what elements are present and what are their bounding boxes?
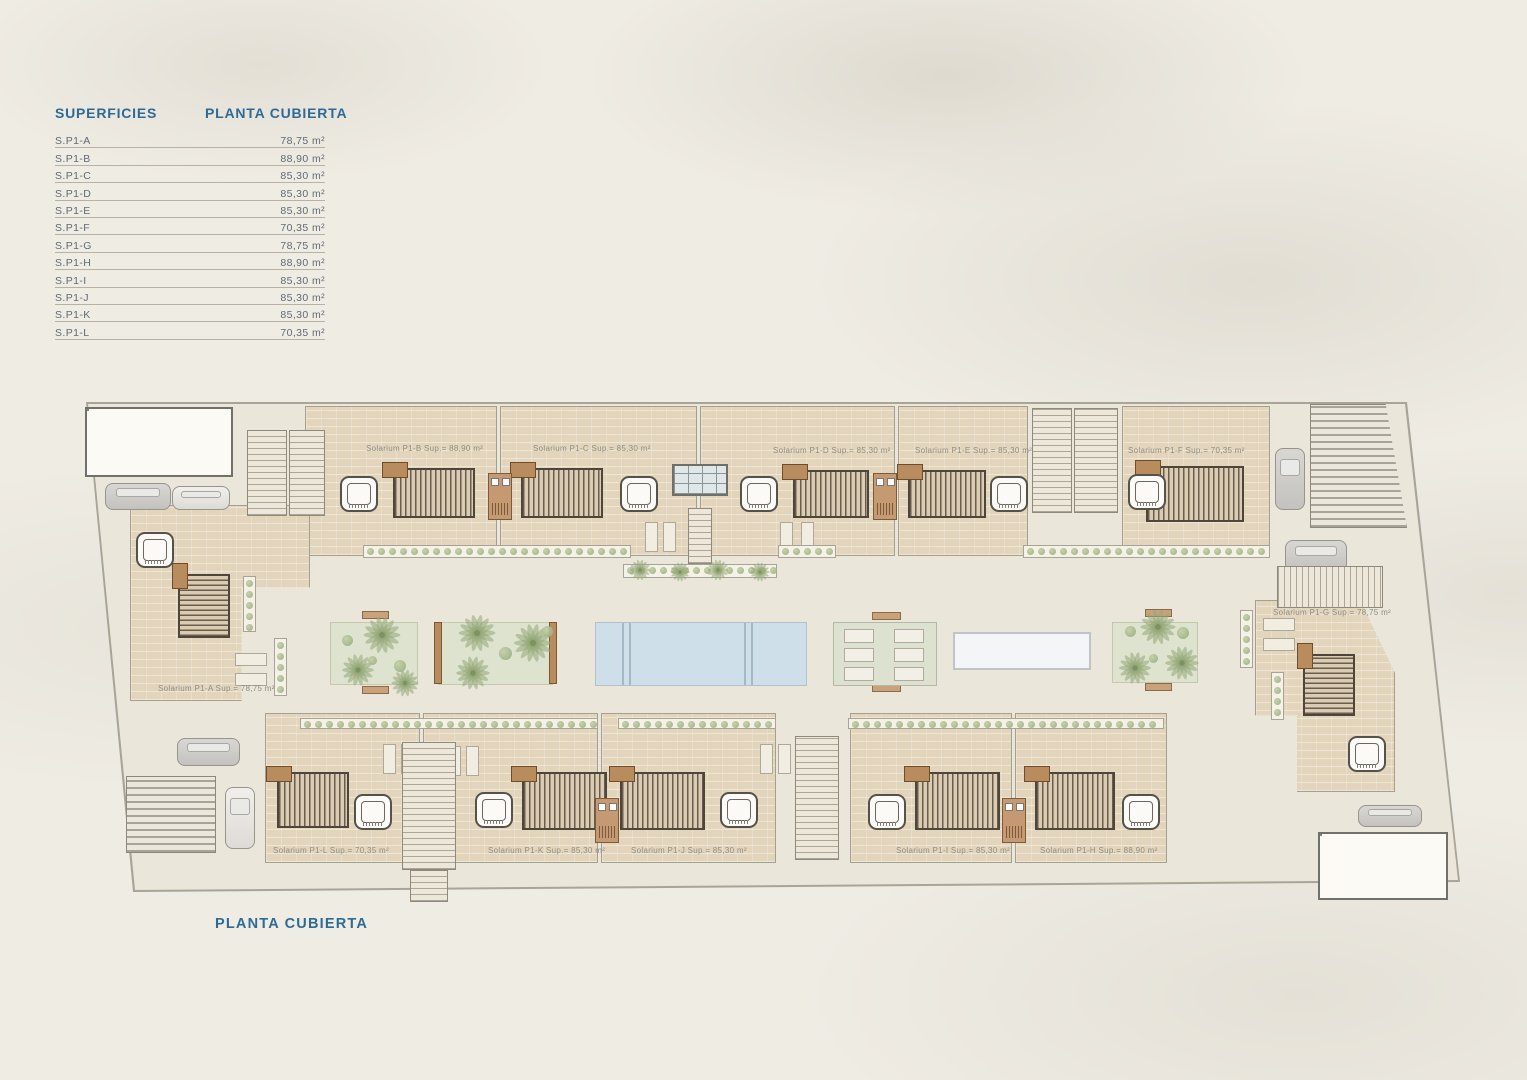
pergola: [620, 772, 705, 830]
bush: [1247, 548, 1254, 555]
bush: [633, 721, 640, 728]
bush: [246, 591, 253, 598]
bush: [1105, 721, 1112, 728]
kitchen-sink: [876, 478, 884, 486]
bush: [737, 567, 744, 574]
kitchen-sink: [491, 478, 499, 486]
bush: [770, 567, 777, 574]
unit-label-b: Solarium P1-B Sup.= 88,90 m²: [366, 444, 483, 453]
jacuzzi: [136, 532, 174, 568]
table-row: S.P1-H88,90 m²: [55, 253, 325, 270]
bush: [1093, 548, 1100, 555]
pergola-table: [782, 464, 808, 480]
sun-lounger: [645, 522, 658, 552]
bush: [246, 602, 253, 609]
bush: [1192, 548, 1199, 555]
pergola: [277, 772, 349, 828]
bush: [587, 548, 594, 555]
planter-strip: [1023, 545, 1270, 558]
bush: [688, 721, 695, 728]
sunbed: [894, 629, 924, 643]
row-name: S.P1-A: [55, 135, 91, 147]
row-name: S.P1-G: [55, 240, 92, 252]
bush: [660, 567, 667, 574]
bush: [444, 548, 451, 555]
car: [177, 738, 240, 766]
legend-column-title: PLANTA CUBIERTA: [205, 105, 347, 121]
pergola: [915, 772, 1000, 830]
row-value: 78,75 m²: [280, 135, 325, 147]
planter-strip: [623, 564, 777, 578]
bush: [277, 642, 284, 649]
sun-lounger: [760, 744, 773, 774]
bush: [543, 548, 550, 555]
bush: [1137, 548, 1144, 555]
stairs: [402, 742, 456, 870]
bush: [1083, 721, 1090, 728]
plan-title: PLANTA CUBIERTA: [215, 916, 368, 932]
solar-panel: [87, 409, 89, 411]
bush: [1094, 721, 1101, 728]
pergola: [521, 468, 603, 518]
planter-strip: [618, 718, 776, 729]
bush: [304, 721, 311, 728]
car: [172, 486, 230, 510]
bush: [1243, 647, 1250, 654]
table-row: S.P1-A78,75 m²: [55, 131, 325, 148]
row-name: S.P1-K: [55, 309, 91, 321]
bench: [872, 612, 901, 620]
bush: [1243, 614, 1250, 621]
stairs: [1032, 408, 1072, 513]
pool-lane-line: [622, 623, 624, 685]
table-row: S.P1-C85,30 m²: [55, 166, 325, 183]
unit-label-f: Solarium P1-F Sup.= 70,35 m²: [1128, 446, 1245, 455]
legend-header: SUPERFICIES PLANTA CUBIERTA: [55, 105, 325, 131]
bush: [826, 548, 833, 555]
planter-strip: [274, 638, 287, 696]
bush: [480, 721, 487, 728]
bush: [748, 567, 755, 574]
solar-panels: [1318, 832, 1448, 900]
row-name: S.P1-F: [55, 222, 90, 234]
bush: [1236, 548, 1243, 555]
pergola-table: [897, 464, 923, 480]
row-value: 70,35 m²: [280, 222, 325, 234]
bench: [362, 611, 389, 619]
bush: [852, 721, 859, 728]
row-value: 85,30 m²: [280, 292, 325, 304]
jacuzzi: [990, 476, 1028, 512]
bush: [425, 721, 432, 728]
bush: [962, 721, 969, 728]
bush: [532, 548, 539, 555]
bush: [447, 721, 454, 728]
bush: [436, 721, 443, 728]
jacuzzi: [720, 792, 758, 828]
bush: [422, 548, 429, 555]
bush: [411, 548, 418, 555]
bush: [1126, 548, 1133, 555]
bush: [513, 721, 520, 728]
bush: [576, 548, 583, 555]
bush: [246, 580, 253, 587]
bench: [1145, 609, 1172, 617]
bush: [721, 721, 728, 728]
bush: [277, 675, 284, 682]
sunbed: [844, 667, 874, 681]
bush: [940, 721, 947, 728]
bench: [362, 686, 389, 694]
row-value: 88,90 m²: [280, 257, 325, 269]
wood-post: [434, 622, 442, 684]
pergola-table: [510, 462, 536, 478]
floor-plan: Solarium P1-A Sup.= 78,75 m² Solarium P1…: [60, 398, 1460, 903]
garden: [330, 622, 418, 685]
planter-strip: [363, 545, 631, 558]
bush: [477, 548, 484, 555]
car: [105, 483, 171, 510]
bush: [368, 656, 377, 665]
bush: [918, 721, 925, 728]
bush: [1181, 548, 1188, 555]
unit-label-a: Solarium P1-A Sup.= 78,75 m²: [158, 684, 275, 693]
row-value: 85,30 m²: [280, 205, 325, 217]
bush: [403, 721, 410, 728]
plan-drawing: [60, 398, 1460, 903]
bush: [1115, 548, 1122, 555]
row-name: S.P1-C: [55, 170, 91, 182]
sun-lounger: [235, 653, 267, 666]
jacuzzi: [354, 794, 392, 830]
unit-label-j: Solarium P1-J Sup.= 85,30 m²: [631, 846, 747, 855]
bush: [378, 548, 385, 555]
table-row: S.P1-G78,75 m²: [55, 235, 325, 252]
bush: [1274, 709, 1281, 716]
bush: [1274, 676, 1281, 683]
table-row: S.P1-K85,30 m²: [55, 305, 325, 322]
carport-canopy: [1310, 404, 1407, 528]
bush: [546, 721, 553, 728]
stairs: [795, 736, 839, 860]
bush: [693, 567, 700, 574]
superficies-rows: S.P1-A78,75 m²S.P1-B88,90 m²S.P1-C85,30 …: [55, 131, 325, 340]
bush: [1127, 721, 1134, 728]
bush: [565, 548, 572, 555]
garden: [438, 622, 553, 685]
bush: [951, 721, 958, 728]
pergola-table: [172, 563, 188, 589]
bush: [885, 721, 892, 728]
row-value: 85,30 m²: [280, 275, 325, 287]
row-name: S.P1-L: [55, 327, 90, 339]
bush: [743, 721, 750, 728]
pergola-table: [609, 766, 635, 782]
planter-strip: [848, 718, 1164, 729]
bush: [627, 567, 634, 574]
bush: [1038, 548, 1045, 555]
bush: [1138, 721, 1145, 728]
solar-panels: [85, 407, 233, 477]
bush: [326, 721, 333, 728]
table-row: S.P1-L70,35 m²: [55, 322, 325, 339]
row-name: S.P1-H: [55, 257, 91, 269]
pergola-table: [904, 766, 930, 782]
bush: [655, 721, 662, 728]
bush: [348, 721, 355, 728]
outdoor-kitchen: [873, 473, 897, 520]
bush: [1061, 721, 1068, 728]
bush: [1243, 625, 1250, 632]
bush: [1274, 698, 1281, 705]
unit-label-l: Solarium P1-L Sup.= 70,35 m²: [273, 846, 389, 855]
bush: [1148, 548, 1155, 555]
outdoor-kitchen: [1002, 798, 1026, 843]
table-row: S.P1-J85,30 m²: [55, 288, 325, 305]
sun-lounger: [663, 522, 676, 552]
bush: [598, 548, 605, 555]
jacuzzi: [740, 476, 778, 512]
jacuzzi: [1348, 736, 1386, 772]
bush: [649, 567, 656, 574]
planter-strip: [778, 545, 836, 558]
bush: [1243, 658, 1250, 665]
bush: [907, 721, 914, 728]
bush: [535, 721, 542, 728]
bush: [469, 721, 476, 728]
skylight: [672, 464, 728, 496]
bush: [1050, 721, 1057, 728]
unit-label-h: Solarium P1-H Sup.= 88,90 m²: [1040, 846, 1158, 855]
bush: [521, 548, 528, 555]
sunbed: [844, 648, 874, 662]
bush: [1039, 721, 1046, 728]
table-row: S.P1-D85,30 m²: [55, 183, 325, 200]
bush: [666, 721, 673, 728]
bush: [793, 548, 800, 555]
bush: [677, 721, 684, 728]
bush: [1170, 548, 1177, 555]
bush: [1258, 548, 1265, 555]
table-row: S.P1-B88,90 m²: [55, 148, 325, 165]
table-row: S.P1-F70,35 m²: [55, 218, 325, 235]
bush: [381, 721, 388, 728]
row-name: S.P1-E: [55, 205, 91, 217]
row-name: S.P1-I: [55, 275, 87, 287]
bush: [510, 548, 517, 555]
carport-canopy: [126, 776, 216, 853]
pergola: [178, 574, 230, 638]
bush: [1159, 548, 1166, 555]
bush: [682, 567, 689, 574]
bush: [1027, 548, 1034, 555]
bush: [1225, 548, 1232, 555]
bush: [1049, 548, 1056, 555]
bush: [277, 653, 284, 660]
bush: [246, 624, 253, 631]
pergola-table: [1297, 643, 1313, 669]
bush: [1082, 548, 1089, 555]
row-name: S.P1-B: [55, 153, 91, 165]
jacuzzi: [1122, 794, 1160, 830]
bush: [1006, 721, 1013, 728]
bush: [1149, 721, 1156, 728]
row-value: 85,30 m²: [280, 309, 325, 321]
pergola: [908, 470, 986, 518]
bush: [1017, 721, 1024, 728]
bush: [400, 548, 407, 555]
bush: [765, 721, 772, 728]
sun-lounger: [1263, 618, 1295, 631]
kitchen-sink: [609, 803, 617, 811]
bush: [277, 664, 284, 671]
bush: [433, 548, 440, 555]
bush: [815, 548, 822, 555]
bush: [568, 721, 575, 728]
bush: [1203, 548, 1210, 555]
unit-label-e: Solarium P1-E Sup.= 85,30 m²: [915, 446, 1032, 455]
sunbed: [894, 648, 924, 662]
sunbed: [894, 667, 924, 681]
bush: [367, 548, 374, 555]
paved-area: [953, 632, 1091, 670]
pool-lane-line: [744, 623, 746, 685]
bush: [874, 721, 881, 728]
bush: [1149, 654, 1158, 663]
bush: [1125, 626, 1136, 637]
bush: [337, 721, 344, 728]
bush: [542, 626, 553, 637]
pergola-table: [266, 766, 292, 782]
unit-label-i: Solarium P1-I Sup.= 85,30 m²: [896, 846, 1010, 855]
bush: [499, 548, 506, 555]
sunbed-deck: [833, 622, 937, 686]
bush: [370, 721, 377, 728]
bush: [524, 721, 531, 728]
bush: [579, 721, 586, 728]
car: [1358, 805, 1422, 827]
bush: [644, 721, 651, 728]
sunbed: [844, 629, 874, 643]
car: [225, 787, 255, 849]
table-row: S.P1-I85,30 m²: [55, 270, 325, 287]
row-value: 70,35 m²: [280, 327, 325, 339]
jacuzzi: [868, 794, 906, 830]
bush: [502, 721, 509, 728]
pergola-table: [382, 462, 408, 478]
row-value: 78,75 m²: [280, 240, 325, 252]
kitchen-sink: [1016, 803, 1024, 811]
sun-lounger: [1263, 638, 1295, 651]
bush: [896, 721, 903, 728]
jacuzzi: [1128, 474, 1166, 510]
outdoor-kitchen: [488, 473, 512, 520]
bench: [1145, 683, 1172, 691]
bush: [1116, 721, 1123, 728]
bush: [499, 647, 512, 660]
pool-lane-line: [629, 623, 631, 685]
superficies-table: SUPERFICIES PLANTA CUBIERTA S.P1-A78,75 …: [55, 105, 325, 340]
row-value: 85,30 m²: [280, 170, 325, 182]
row-value: 85,30 m²: [280, 188, 325, 200]
planter-strip: [300, 718, 598, 729]
pool-lane-line: [751, 623, 753, 685]
bush: [392, 721, 399, 728]
unit-label-c: Solarium P1-C Sup.= 85,30 m²: [533, 444, 651, 453]
bush: [1072, 721, 1079, 728]
outdoor-kitchen: [595, 798, 619, 843]
bush: [620, 548, 627, 555]
kitchen-sink: [887, 478, 895, 486]
bush: [455, 548, 462, 555]
unit-label-k: Solarium P1-K Sup.= 85,30 m²: [488, 846, 605, 855]
table-row: S.P1-E85,30 m²: [55, 201, 325, 218]
sun-lounger: [466, 746, 479, 776]
stairs: [1277, 566, 1383, 608]
stairs: [247, 430, 287, 516]
pergola: [1303, 654, 1355, 716]
stairs: [410, 870, 448, 902]
bush: [1104, 548, 1111, 555]
bush: [590, 721, 597, 728]
bush: [394, 660, 406, 672]
pergola: [793, 470, 869, 518]
unit-label-g: Solarium P1-G Sup.= 78,75 m²: [1273, 608, 1391, 617]
sun-lounger: [383, 744, 396, 774]
unit-label-d: Solarium P1-D Sup.= 85,30 m²: [773, 446, 891, 455]
jacuzzi: [475, 792, 513, 828]
row-name: S.P1-D: [55, 188, 91, 200]
bush: [315, 721, 322, 728]
bush: [715, 567, 722, 574]
bush: [638, 567, 645, 574]
bush: [759, 567, 766, 574]
bush: [754, 721, 761, 728]
bush: [622, 721, 629, 728]
bush: [1177, 627, 1189, 639]
bush: [732, 721, 739, 728]
kitchen-sink: [598, 803, 606, 811]
bush: [726, 567, 733, 574]
pergola-table: [1024, 766, 1050, 782]
kitchen-sink: [502, 478, 510, 486]
bush: [1071, 548, 1078, 555]
kitchen-sink: [1005, 803, 1013, 811]
bush: [804, 548, 811, 555]
row-value: 88,90 m²: [280, 153, 325, 165]
stairs: [688, 508, 712, 564]
car: [1275, 448, 1305, 510]
pergola-table: [511, 766, 537, 782]
bush: [929, 721, 936, 728]
bush: [863, 721, 870, 728]
bush: [671, 567, 678, 574]
sun-lounger: [778, 744, 791, 774]
planter-strip: [1271, 672, 1284, 720]
bush: [1274, 687, 1281, 694]
bush: [557, 721, 564, 728]
jacuzzi: [340, 476, 378, 512]
bush: [342, 635, 353, 646]
bush: [995, 721, 1002, 728]
bush: [414, 721, 421, 728]
bush: [1214, 548, 1221, 555]
bush: [466, 548, 473, 555]
bush: [488, 548, 495, 555]
bush: [246, 613, 253, 620]
planter-strip: [1240, 610, 1253, 668]
bush: [389, 548, 396, 555]
